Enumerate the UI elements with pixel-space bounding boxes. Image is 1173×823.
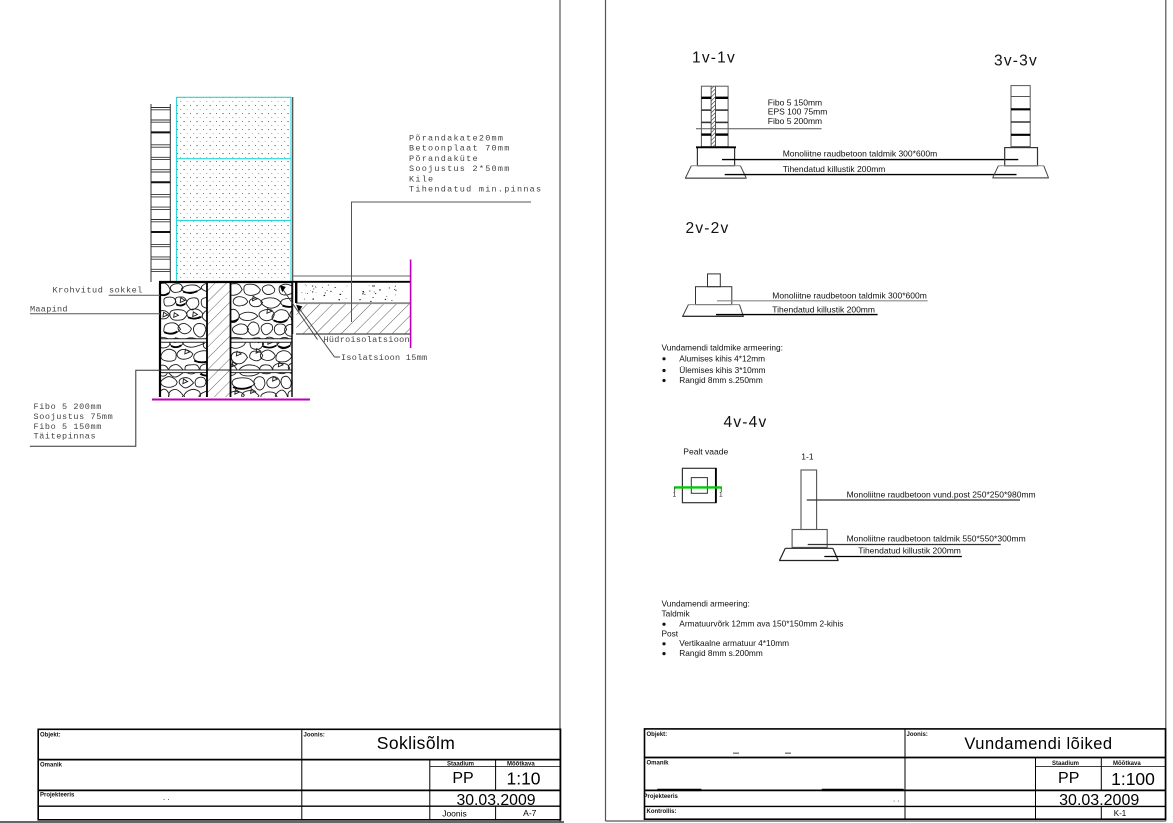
svg-text:Rangid 8mm s.200mm: Rangid 8mm s.200mm xyxy=(679,648,763,658)
svg-text:Taldmik: Taldmik xyxy=(662,608,691,618)
svg-text:PP: PP xyxy=(1058,770,1079,787)
svg-text:Vundamendi taldmike armeering:: Vundamendi taldmike armeering: xyxy=(662,343,783,353)
svg-text:2v-2v: 2v-2v xyxy=(686,220,730,237)
svg-text:Monoliitne raudbetoon taldmik: Monoliitne raudbetoon taldmik 550*550*30… xyxy=(847,534,1026,544)
svg-text:Maapind: Maapind xyxy=(30,305,68,315)
svg-text:Joonis: Joonis xyxy=(442,809,467,819)
svg-text:Armatuurvõrk 12mm ava 150*150m: Armatuurvõrk 12mm ava 150*150mm 2-kihis xyxy=(679,619,843,629)
svg-text:Tihendatud killustik 200mm: Tihendatud killustik 200mm xyxy=(783,164,886,174)
svg-text:Mõõtkava: Mõõtkava xyxy=(507,761,535,767)
svg-text:Post: Post xyxy=(662,628,679,638)
svg-text:Pealt vaade: Pealt vaade xyxy=(683,446,728,456)
svg-text:Vundamendi armeering:: Vundamendi armeering: xyxy=(662,599,750,609)
svg-text:Täitepinnas: Täitepinnas xyxy=(34,432,97,442)
svg-text:Krohvitud sokkel: Krohvitud sokkel xyxy=(53,286,143,296)
svg-text:Omanik: Omanik xyxy=(40,763,63,769)
svg-text:Projekteeris: Projekteeris xyxy=(40,792,75,798)
svg-text:Objekt:: Objekt: xyxy=(40,733,61,739)
svg-text:Isolatsioon 15mm: Isolatsioon 15mm xyxy=(341,353,427,363)
svg-text:Põrandakate20mm: Põrandakate20mm xyxy=(409,134,504,144)
svg-text:Soojustus 75mm: Soojustus 75mm xyxy=(34,412,114,422)
svg-text:Staadium: Staadium xyxy=(447,761,474,767)
svg-text:Ülemises kihis 3*10mm: Ülemises kihis 3*10mm xyxy=(679,365,765,375)
svg-text:1: 1 xyxy=(719,492,723,499)
svg-text:Vertikaalne armatuur 4*10mm: Vertikaalne armatuur 4*10mm xyxy=(679,638,789,648)
svg-text:Mõõtkava: Mõõtkava xyxy=(1113,761,1141,767)
svg-text:1v-1v: 1v-1v xyxy=(692,50,736,67)
svg-text:Fibo 5 150mm: Fibo 5 150mm xyxy=(34,422,102,432)
svg-text:3v-3v: 3v-3v xyxy=(994,53,1038,70)
svg-text:30.03.2009: 30.03.2009 xyxy=(1059,792,1139,809)
svg-text:Projekteeris: Projekteeris xyxy=(644,794,679,800)
svg-text:Hüdroisolatsioon: Hüdroisolatsioon xyxy=(324,335,410,345)
svg-text:Fibo 5 200mm: Fibo 5 200mm xyxy=(34,402,102,412)
svg-text:Joonis:: Joonis: xyxy=(304,733,325,739)
svg-text:K-1: K-1 xyxy=(1114,809,1127,818)
svg-text:30.03.2009: 30.03.2009 xyxy=(456,792,535,809)
svg-text:Tihendatud min.pinnas: Tihendatud min.pinnas xyxy=(409,185,542,195)
svg-text:. .: . . xyxy=(893,795,900,804)
svg-text:Monoliitne raudbetoon taldmik: Monoliitne raudbetoon taldmik 300*600m xyxy=(772,290,927,300)
svg-text:1: 1 xyxy=(673,492,677,499)
svg-text:1-1: 1-1 xyxy=(801,451,814,461)
svg-text:1:10: 1:10 xyxy=(506,769,540,789)
svg-text:Objekt:: Objekt: xyxy=(647,732,668,738)
svg-text:Kile: Kile xyxy=(409,174,434,184)
svg-text:A-7: A-7 xyxy=(523,808,537,818)
svg-text:Tihendatud killustik 200mm: Tihendatud killustik 200mm xyxy=(858,546,961,556)
svg-text:Alumises kihis 4*12mm: Alumises kihis 4*12mm xyxy=(679,353,765,363)
svg-text:Monoliitne raudbetoon taldmik: Monoliitne raudbetoon taldmik 300*600m xyxy=(783,149,938,159)
svg-text:Betoonplaat 70mm: Betoonplaat 70mm xyxy=(409,144,511,154)
svg-text:4v-4v: 4v-4v xyxy=(724,414,768,431)
svg-text:Kontrollis:: Kontrollis: xyxy=(647,809,677,815)
svg-text:Soklisõlm: Soklisõlm xyxy=(377,733,455,753)
svg-text:Fibo 5 200mm: Fibo 5 200mm xyxy=(768,116,822,126)
svg-text:Rangid 8mm s.250mm: Rangid 8mm s.250mm xyxy=(679,375,763,385)
svg-text:Tihendatud killustik 200mm: Tihendatud killustik 200mm xyxy=(772,305,875,315)
svg-text:Monoliitne raudbetoon vund.pos: Monoliitne raudbetoon vund.post 250*250*… xyxy=(847,489,1036,499)
svg-text:Joonis:: Joonis: xyxy=(907,732,928,738)
svg-text:Staadium: Staadium xyxy=(1052,761,1079,767)
svg-text:PP: PP xyxy=(452,770,473,787)
svg-text:Põrandaküte: Põrandaküte xyxy=(409,154,479,164)
svg-text:1:100: 1:100 xyxy=(1111,769,1155,789)
svg-text:Soojustus 2*50mm: Soojustus 2*50mm xyxy=(409,164,511,174)
svg-text:Omanik: Omanik xyxy=(647,761,670,767)
svg-text:. .: . . xyxy=(163,793,170,802)
svg-text:Vundamendi lõiked: Vundamendi lõiked xyxy=(964,735,1112,753)
